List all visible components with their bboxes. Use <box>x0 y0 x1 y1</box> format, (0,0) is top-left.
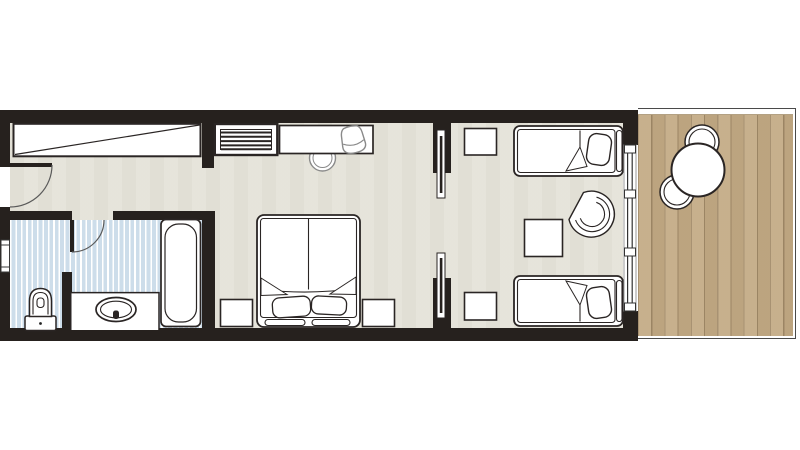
faucet <box>113 311 119 320</box>
pillow <box>311 296 347 316</box>
sliding-glass-door <box>624 145 636 311</box>
nightstand <box>465 129 497 156</box>
double-bed <box>257 215 360 327</box>
luggage-bench <box>215 124 277 155</box>
pillow <box>585 133 612 167</box>
pillow <box>272 296 311 319</box>
wardrobe <box>14 124 201 157</box>
pocket-door-bottom <box>437 253 445 318</box>
toilet <box>25 289 56 331</box>
nightstand <box>363 300 395 327</box>
balcony-table <box>672 144 725 197</box>
side-table <box>525 220 563 257</box>
washbasin-counter <box>70 292 160 330</box>
bathtub <box>161 220 201 327</box>
pillow <box>585 286 612 320</box>
nightstand <box>465 293 497 321</box>
bathroom-window <box>1 240 10 272</box>
pocket-door-top <box>437 130 445 198</box>
bathroom-door <box>70 220 104 252</box>
twin-bed-bottom <box>514 276 623 326</box>
entry-door <box>10 163 52 207</box>
nightstand <box>221 300 253 327</box>
twin-bed-top <box>514 126 623 176</box>
armchair <box>569 191 614 237</box>
floor-plan <box>0 0 800 450</box>
